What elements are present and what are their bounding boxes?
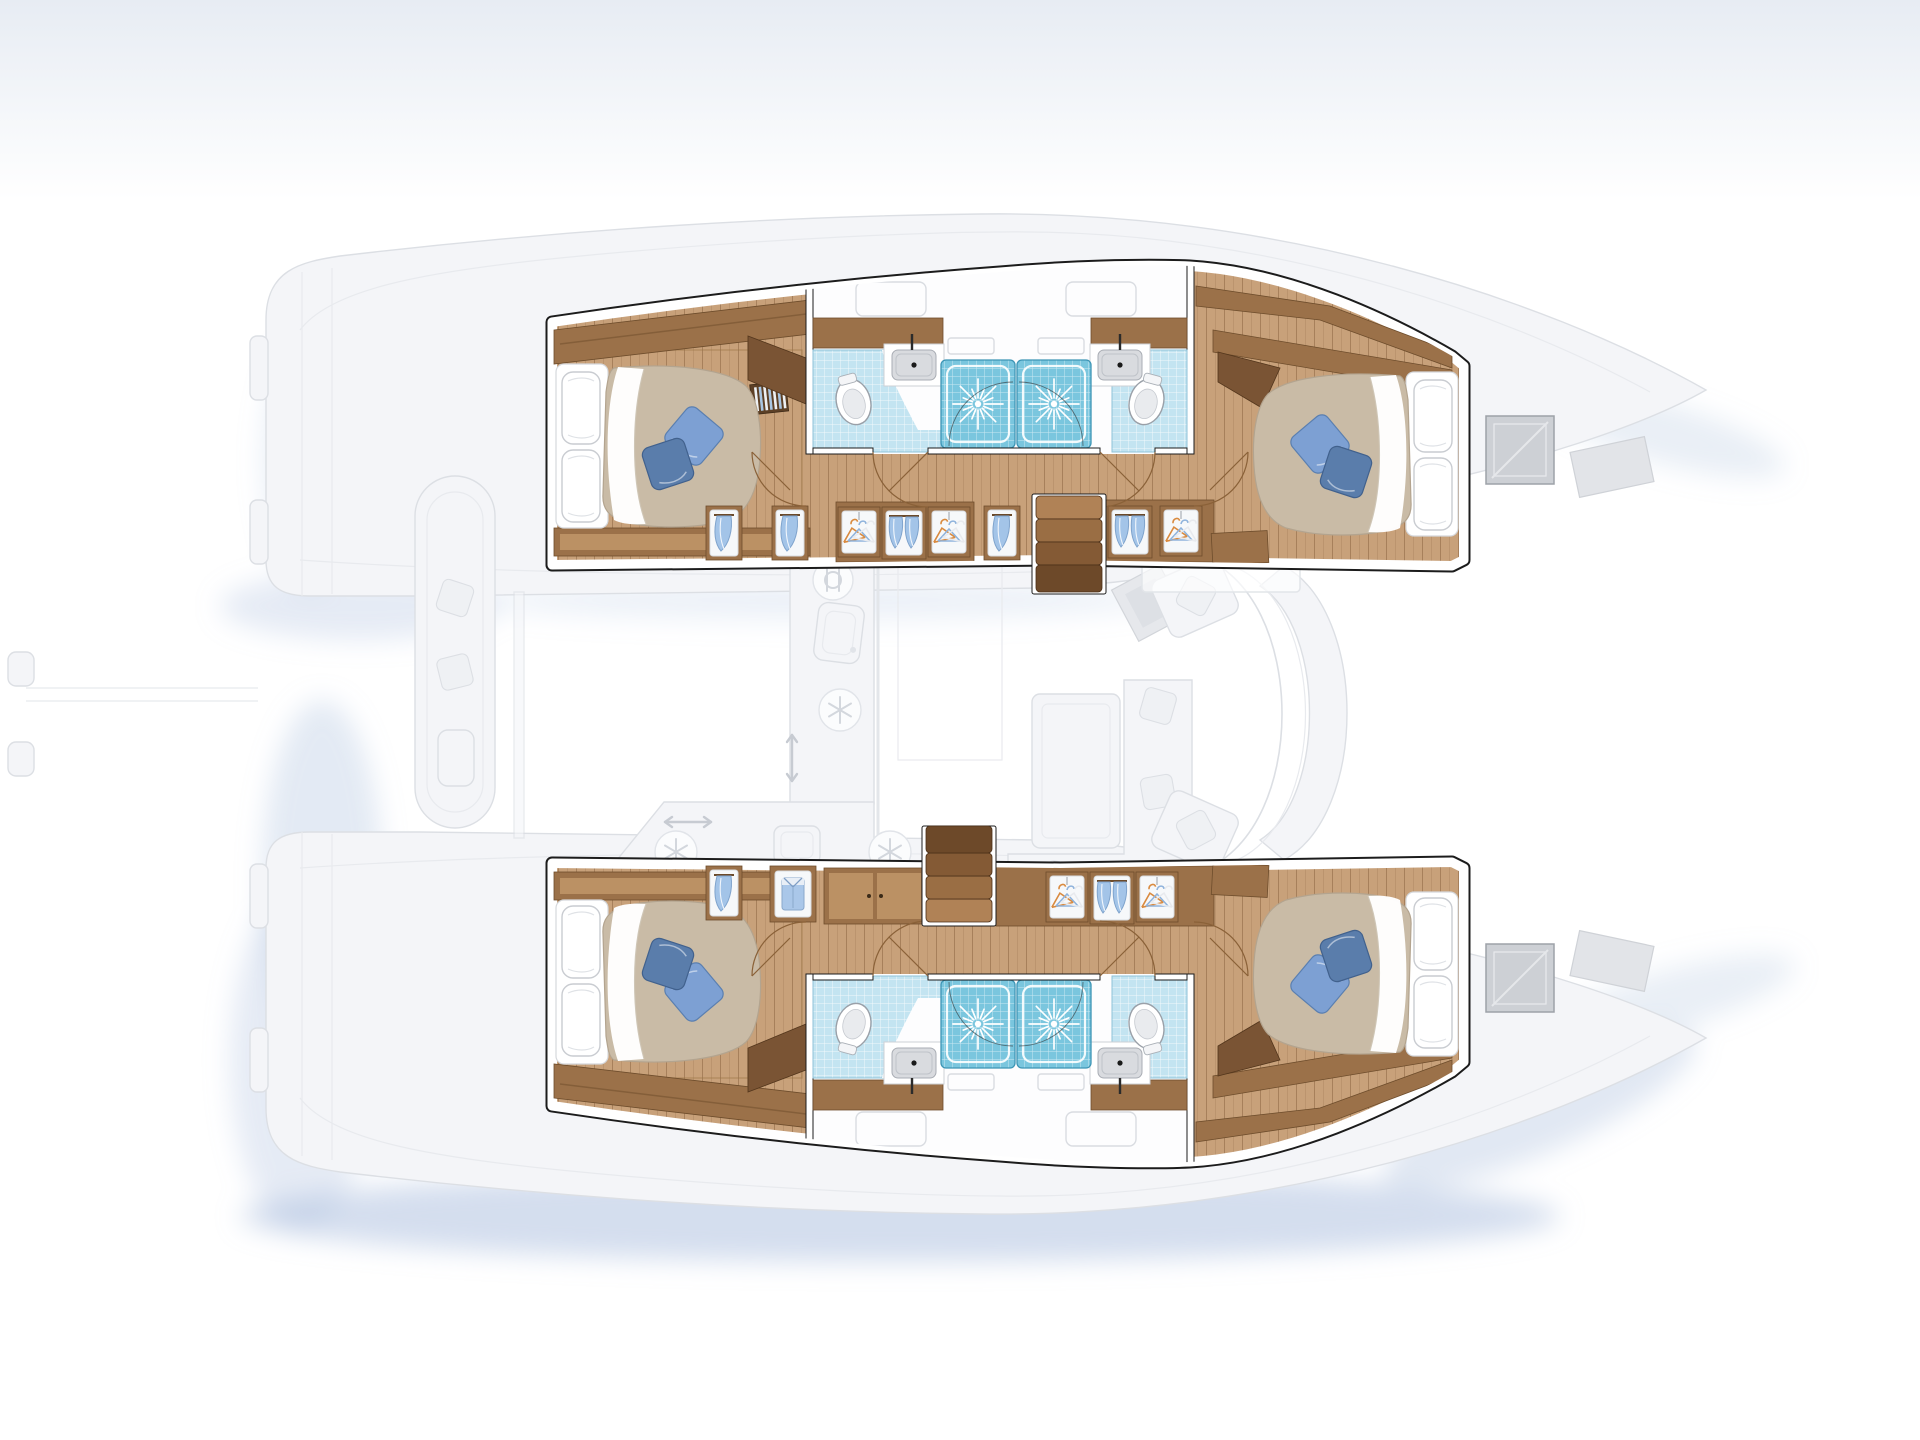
wardrobe-hangers bbox=[1046, 872, 1088, 922]
wardrobe-hangers bbox=[928, 507, 970, 557]
galley-counter bbox=[612, 802, 874, 866]
double-bed-forward-port bbox=[1253, 372, 1458, 536]
bow-hatch-port bbox=[1486, 416, 1554, 484]
galley-sink bbox=[774, 826, 820, 864]
companionway-stairs-port bbox=[1036, 496, 1102, 592]
bow-window-port bbox=[1570, 437, 1654, 498]
cockpit-cushion bbox=[436, 653, 475, 692]
folded-shirt-niche bbox=[770, 866, 816, 922]
linen-niche bbox=[984, 506, 1020, 560]
floorplan-image bbox=[0, 0, 1920, 1440]
linen-niche bbox=[706, 866, 742, 920]
wardrobe-towels bbox=[1090, 872, 1134, 924]
bow-window-starboard bbox=[1570, 931, 1654, 992]
sliding-door-track bbox=[514, 592, 524, 838]
bow-hatch-starboard bbox=[1486, 944, 1554, 1012]
locker-doors bbox=[824, 868, 926, 924]
companionway-stairs-starboard bbox=[926, 826, 992, 922]
floorplan-svg bbox=[0, 0, 1920, 1440]
wardrobe-towels bbox=[1108, 506, 1152, 558]
linen-niche bbox=[772, 506, 808, 560]
stern-cleat bbox=[8, 742, 34, 776]
double-bed-aft-port bbox=[556, 364, 761, 528]
linen-niche bbox=[706, 506, 742, 560]
double-bed-forward-starboard bbox=[1253, 892, 1458, 1056]
double-bed-aft-starboard bbox=[556, 900, 761, 1064]
dining-table bbox=[1032, 694, 1120, 848]
stern-cleat bbox=[8, 652, 34, 686]
curved-settee bbox=[1260, 566, 1347, 860]
sky-wash bbox=[0, 0, 1920, 200]
galley-sink bbox=[813, 601, 866, 664]
wardrobe-hangers bbox=[1136, 872, 1178, 922]
fridge-icon bbox=[819, 689, 861, 731]
wardrobe-towels bbox=[882, 507, 926, 559]
wardrobe-hangers bbox=[838, 507, 880, 557]
wardrobe-hangers bbox=[1160, 506, 1202, 556]
